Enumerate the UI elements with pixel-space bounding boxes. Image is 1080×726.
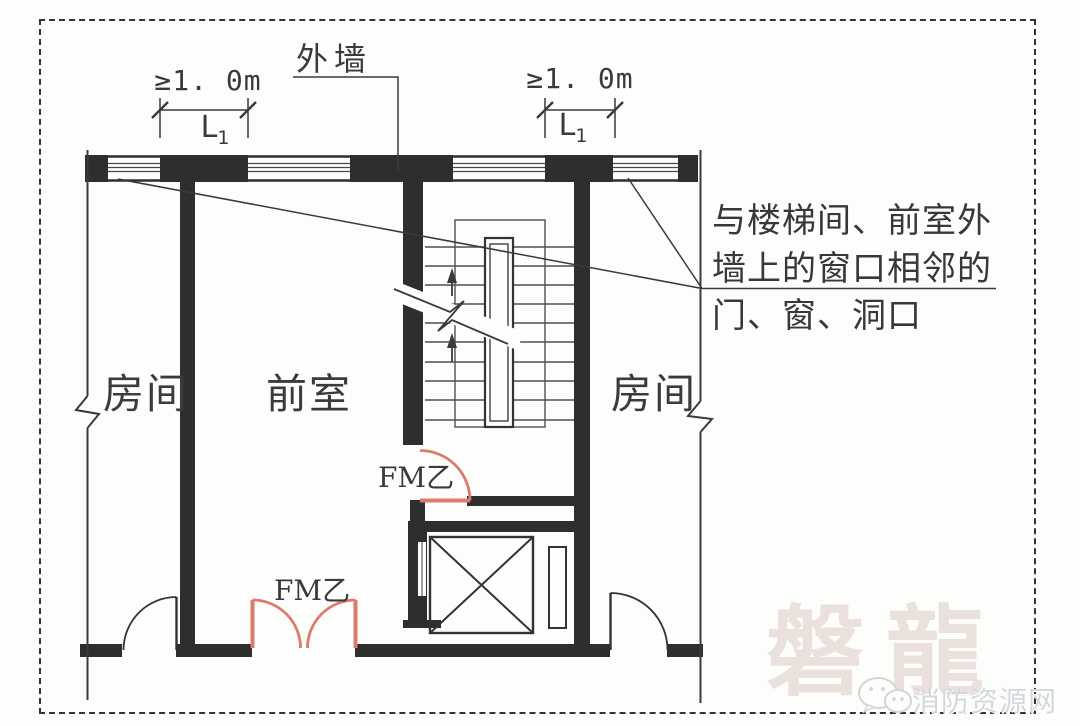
door-swing-arc	[611, 593, 668, 650]
dimension-left-value: ≥1. 0m	[150, 64, 266, 97]
top-exterior-wall	[85, 155, 698, 182]
wechat-icon	[856, 676, 912, 716]
annotation-line-2: 墙上的窗口相邻的	[712, 246, 1047, 294]
annotation-line-1: 与楼梯间、前室外	[712, 198, 1047, 246]
annotation-leader-right-window	[628, 178, 702, 289]
elevator-shaft	[418, 537, 566, 633]
wall-piers	[85, 155, 698, 182]
room-left-label: 房间	[103, 360, 189, 420]
fire-door-double-label: FM乙	[274, 569, 350, 609]
annotation-line-3: 门、窗、洞口	[712, 293, 1047, 341]
annotation-text: 与楼梯间、前室外 墙上的窗口相邻的 门、窗、洞口	[712, 198, 1047, 341]
break-symbol	[76, 396, 99, 428]
elevator-counterweight	[549, 547, 566, 628]
right-room-door	[611, 593, 668, 650]
dimension-left-length-label: L1	[170, 110, 260, 149]
floor-plan-figure: 外墙 ≥1. 0m L1 ≥1. 0m L1 房间 前室 房间 FM乙 FM乙 …	[0, 0, 1080, 726]
fire-door-single-label: FM乙	[378, 456, 454, 496]
dimension-right-length-label: L1	[528, 108, 618, 147]
length-symbol: L	[559, 108, 576, 143]
room-right-label: 房间	[611, 360, 697, 420]
dimension-right-value: ≥1. 0m	[522, 62, 638, 95]
length-symbol: L	[201, 110, 218, 145]
length-subscript: 1	[575, 125, 587, 147]
left-room-door	[124, 597, 177, 650]
exterior-wall-label: 外墙	[296, 34, 372, 80]
anteroom-label: 前室	[266, 360, 352, 420]
left-exterior-wall-line	[76, 150, 99, 700]
door-swing-arc	[124, 597, 177, 650]
length-subscript: 1	[217, 127, 229, 149]
watermark-site-name: 消防资源网	[912, 680, 1057, 720]
right-exterior-wall-line	[688, 150, 712, 703]
